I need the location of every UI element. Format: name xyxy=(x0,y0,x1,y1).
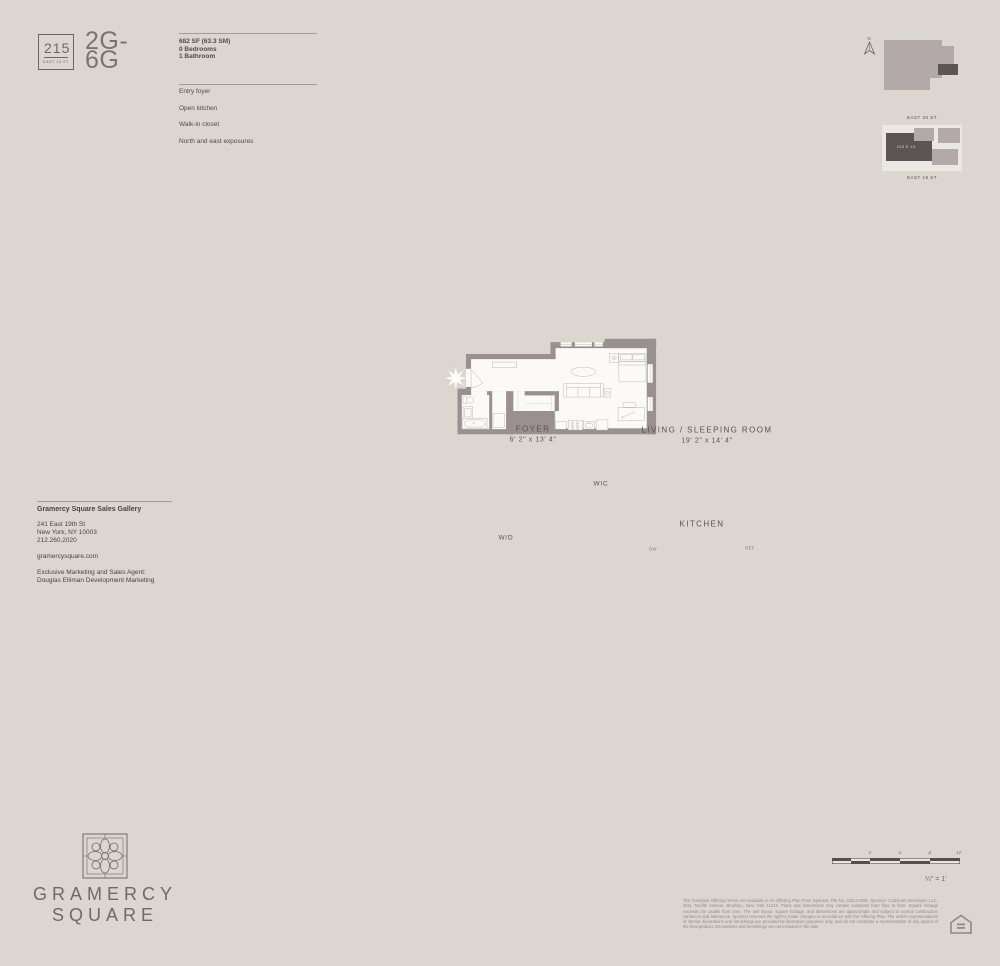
spec-bedrooms: 0 Bedrooms xyxy=(179,46,230,54)
brand-ornament-icon xyxy=(82,833,128,879)
contact-title: Gramercy Square Sales Gallery xyxy=(37,506,187,513)
contact-website: gramercysquare.com xyxy=(37,553,187,561)
feature-item: Open kitchen xyxy=(179,105,253,112)
keyplan-building-label: 215 E 19 xyxy=(886,144,926,149)
keyplan-street-top: EAST 20 ST xyxy=(878,115,966,120)
north-indicator: N xyxy=(861,36,877,60)
scale-tick-label: 4' xyxy=(899,850,902,855)
feature-item: North and east exposures xyxy=(179,138,253,145)
contact-phone: 212.260.2020 xyxy=(37,537,187,545)
spec-bathrooms: 1 Bathroom xyxy=(179,53,230,61)
feature-item: Walk-in closet xyxy=(179,121,253,128)
spec-rule-top xyxy=(179,33,317,34)
building-street: EAST 19 ST xyxy=(39,60,73,64)
dishwasher-label: DW xyxy=(649,547,657,552)
scale-bar-graphic xyxy=(832,858,960,865)
entry-splash-icon xyxy=(445,367,467,389)
sales-gallery-contact: Gramercy Square Sales Gallery 241 East 1… xyxy=(37,501,187,585)
living-dims: 19' 2" x 14' 4" xyxy=(681,438,732,445)
spec-rule-bottom xyxy=(179,84,317,85)
floorplan-sheet: 215 EAST 19 ST 2G- 6G 682 SF (63.3 SM) 0… xyxy=(0,0,1000,966)
contact-address-2: New York, NY 10003 xyxy=(37,529,187,537)
footprint-notch xyxy=(930,78,960,90)
contact-rule xyxy=(37,501,172,502)
north-arrow-icon xyxy=(864,41,875,55)
unit-range: 2G- 6G xyxy=(85,32,128,70)
building-footprint xyxy=(884,38,962,92)
contact-address-1: 241 East 19th St xyxy=(37,521,187,529)
scale-ratio: ¼" = 1' xyxy=(925,876,947,883)
spec-area: 682 SF (63.3 SM) xyxy=(179,38,230,46)
keyplan-building-c xyxy=(932,149,958,165)
feature-list: Entry foyer Open kitchen Walk-in closet … xyxy=(179,88,253,154)
footprint-unit-marker xyxy=(938,64,958,75)
building-badge: 215 EAST 19 ST xyxy=(38,34,74,70)
wic-label: WIC xyxy=(593,481,608,488)
feature-item: Entry foyer xyxy=(179,88,253,95)
washer-dryer-label: W/D xyxy=(498,535,513,542)
contact-agent-2: Douglas Elliman Development Marketing xyxy=(37,577,187,585)
foyer-dims: 6' 2" x 13' 4" xyxy=(510,437,557,444)
floorplan-svg xyxy=(378,335,886,580)
keyplan-street-bottom: EAST 19 ST xyxy=(878,175,966,180)
scale-tick-label: 2' xyxy=(869,850,872,855)
kitchen-label: KITCHEN xyxy=(680,520,725,529)
keyplan-building-a xyxy=(914,128,934,141)
scale-tick-label: 12' xyxy=(956,850,961,855)
scale-bar: 2' 4' 8' 12' xyxy=(832,850,960,868)
refrigerator-label: REF xyxy=(745,546,754,551)
equal-housing-icon xyxy=(949,913,973,935)
keyplan-building-b xyxy=(938,128,960,143)
legal-disclaimer: The Complete Offering Terms Are Availabl… xyxy=(683,898,938,930)
brand-wordmark: GRAMERCY SQUARE xyxy=(25,884,185,926)
unit-specs: 682 SF (63.3 SM) 0 Bedrooms 1 Bathroom xyxy=(179,38,230,61)
building-number: 215 xyxy=(44,40,68,58)
living-label: LIVING / SLEEPING ROOM xyxy=(642,426,773,435)
contact-agent-1: Exclusive Marketing and Sales Agent: xyxy=(37,569,187,577)
brand-name-line1: GRAMERCY xyxy=(25,884,185,905)
key-plan: EAST 20 ST 215 E 19 EAST 19 ST xyxy=(878,113,966,183)
brand-name-line2: SQUARE xyxy=(25,905,185,926)
foyer-label: FOYER xyxy=(516,425,551,434)
scale-tick-label: 8' xyxy=(929,850,932,855)
